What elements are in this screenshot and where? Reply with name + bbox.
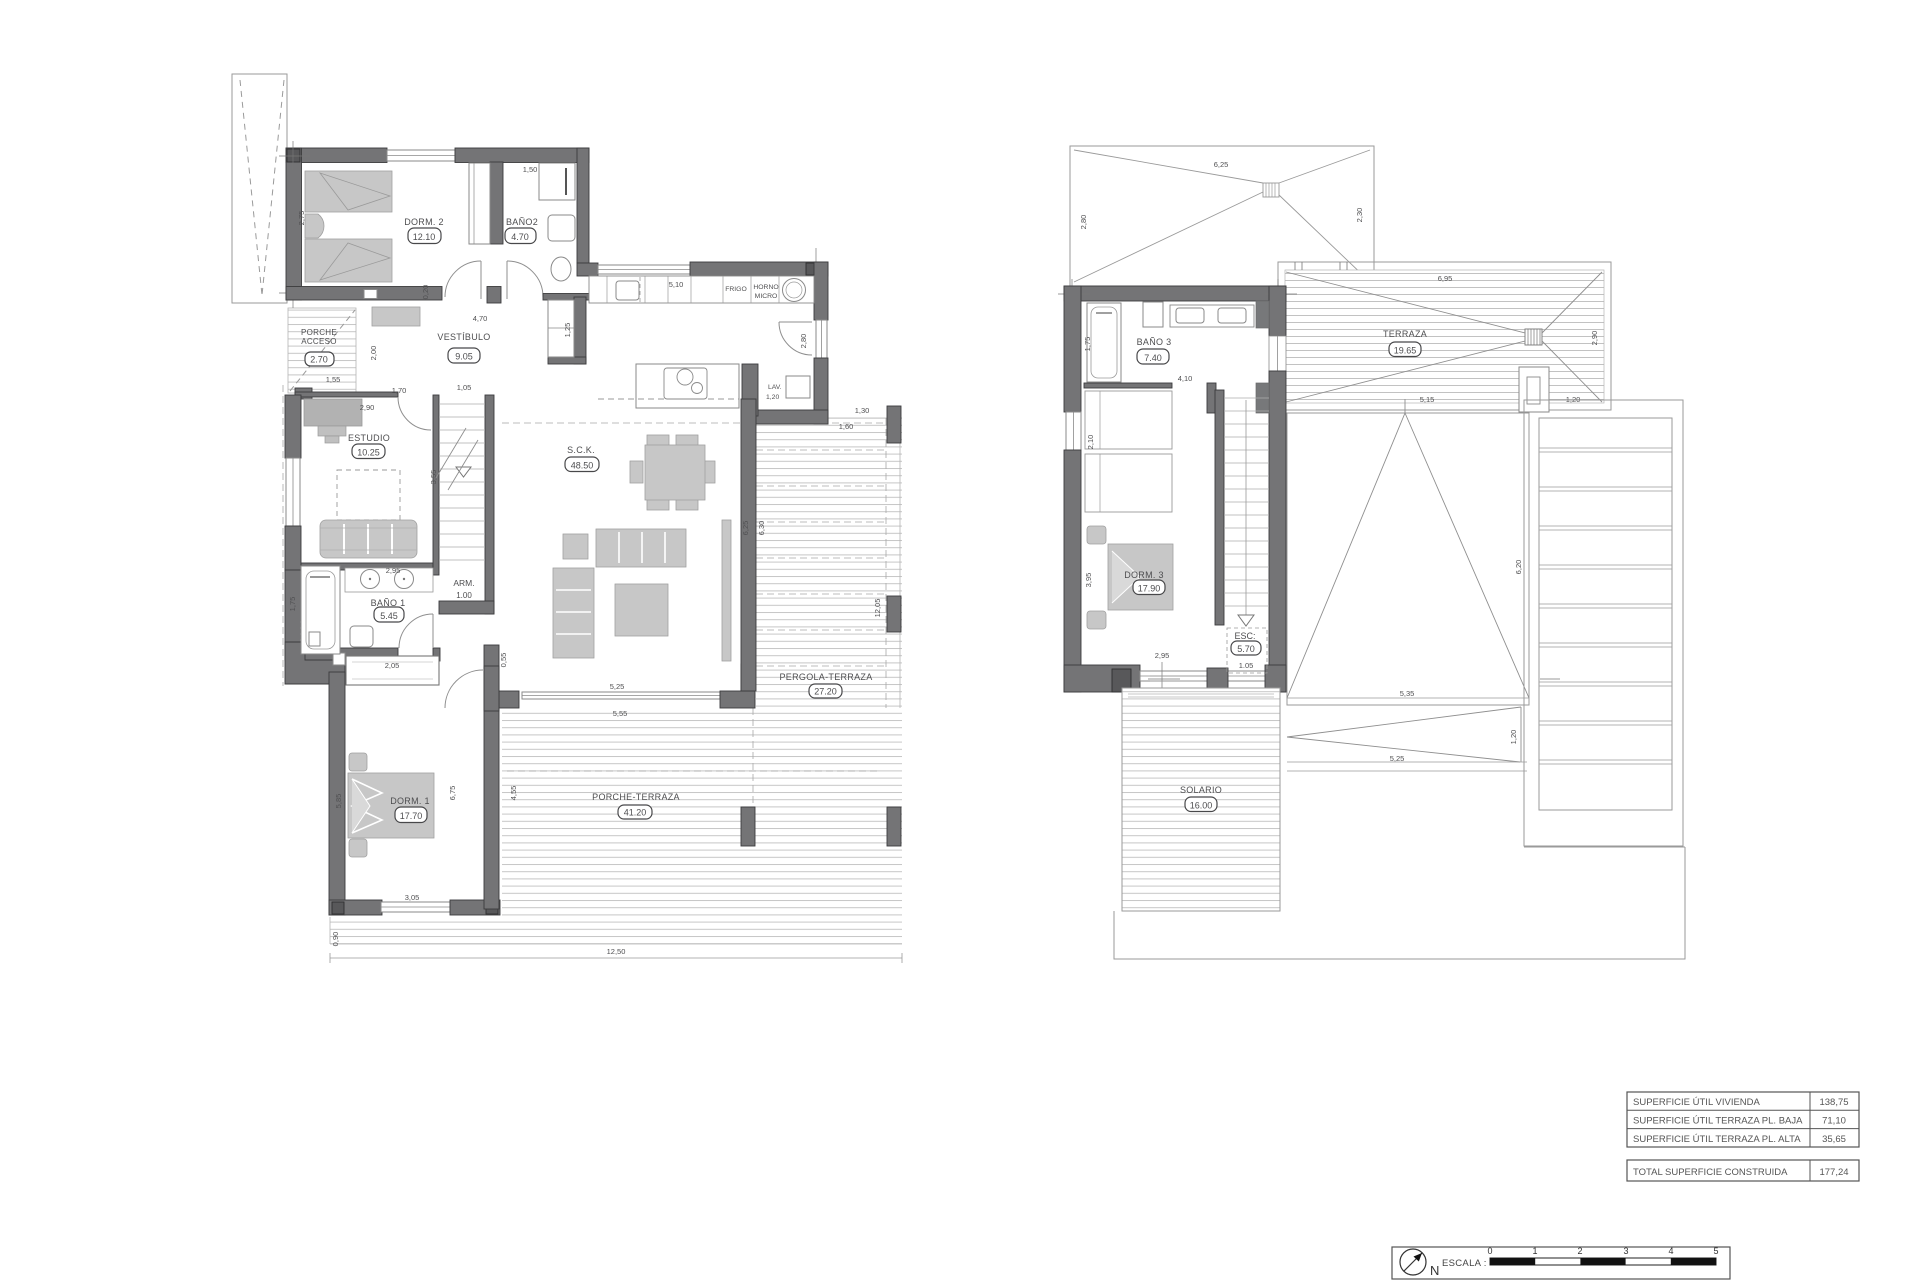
svg-text:1,50: 1,50 xyxy=(523,165,538,174)
svg-text:4,10: 4,10 xyxy=(1178,374,1193,383)
svg-text:4,70: 4,70 xyxy=(473,314,488,323)
svg-text:1,30: 1,30 xyxy=(855,406,870,415)
svg-text:2.70: 2.70 xyxy=(310,355,328,365)
svg-text:17.90: 17.90 xyxy=(1138,584,1161,594)
svg-text:5,85: 5,85 xyxy=(334,794,343,809)
svg-text:1,20: 1,20 xyxy=(766,394,779,401)
svg-text:0,20: 0,20 xyxy=(421,285,430,300)
svg-text:ACCESO: ACCESO xyxy=(301,337,337,346)
svg-text:35,65: 35,65 xyxy=(1822,1134,1846,1145)
svg-text:71,10: 71,10 xyxy=(1822,1116,1846,1127)
svg-text:ESTUDIO: ESTUDIO xyxy=(348,433,390,443)
svg-text:FRIGO: FRIGO xyxy=(725,286,747,293)
svg-text:2,80: 2,80 xyxy=(1079,215,1088,230)
svg-text:TERRAZA: TERRAZA xyxy=(1383,329,1427,339)
svg-text:5.70: 5.70 xyxy=(1237,644,1255,654)
svg-text:12,50: 12,50 xyxy=(607,947,626,956)
svg-text:2,90: 2,90 xyxy=(1590,331,1599,346)
svg-text:2,05: 2,05 xyxy=(385,661,400,670)
svg-text:12.10: 12.10 xyxy=(413,232,436,242)
svg-text:4.70: 4.70 xyxy=(511,232,529,242)
svg-text:3,95: 3,95 xyxy=(1084,573,1093,588)
svg-text:16.00: 16.00 xyxy=(1190,801,1213,811)
svg-text:TOTAL SUPERFICIE CONSTRUIDA: TOTAL SUPERFICIE CONSTRUIDA xyxy=(1633,1167,1788,1178)
svg-text:PORCHE-TERRAZA: PORCHE-TERRAZA xyxy=(592,792,680,802)
svg-text:5,25: 5,25 xyxy=(610,682,625,691)
svg-text:SOLARIO: SOLARIO xyxy=(1180,785,1222,795)
svg-text:41.20: 41.20 xyxy=(624,808,647,818)
svg-text:3,55: 3,55 xyxy=(429,470,438,485)
svg-text:ARM.: ARM. xyxy=(453,578,474,588)
svg-text:6,20: 6,20 xyxy=(1514,560,1523,575)
svg-text:2: 2 xyxy=(1577,1246,1582,1256)
svg-text:5.45: 5.45 xyxy=(380,611,398,621)
svg-text:9.05: 9.05 xyxy=(455,352,473,362)
svg-text:DORM. 1: DORM. 1 xyxy=(390,796,430,806)
svg-text:3,05: 3,05 xyxy=(405,893,420,902)
svg-text:3: 3 xyxy=(1623,1246,1628,1256)
svg-text:SUPERFICIE ÚTIL TERRAZA PL. BA: SUPERFICIE ÚTIL TERRAZA PL. BAJA xyxy=(1633,1116,1803,1127)
svg-text:6,30: 6,30 xyxy=(757,521,766,536)
svg-text:1: 1 xyxy=(1532,1246,1537,1256)
svg-text:SUPERFICIE ÚTIL TERRAZA PL. AL: SUPERFICIE ÚTIL TERRAZA PL. ALTA xyxy=(1633,1134,1801,1145)
svg-text:6,25: 6,25 xyxy=(1214,160,1229,169)
svg-text:1,60: 1,60 xyxy=(839,422,854,431)
svg-text:BAÑO 3: BAÑO 3 xyxy=(1137,337,1172,347)
svg-text:2,80: 2,80 xyxy=(799,334,808,349)
svg-text:DORM. 3: DORM. 3 xyxy=(1124,570,1164,580)
svg-text:PERGOLA-TERRAZA: PERGOLA-TERRAZA xyxy=(779,672,872,682)
svg-text:DORM. 2: DORM. 2 xyxy=(404,217,444,227)
svg-text:27.20: 27.20 xyxy=(814,687,837,697)
svg-text:1,75: 1,75 xyxy=(288,597,297,612)
svg-text:48.50: 48.50 xyxy=(571,461,594,471)
svg-text:1,55: 1,55 xyxy=(326,375,341,384)
svg-text:SUPERFICIE ÚTIL VIVIENDA: SUPERFICIE ÚTIL VIVIENDA xyxy=(1633,1097,1761,1108)
svg-text:1,70: 1,70 xyxy=(392,386,407,395)
svg-text:ESC:: ESC: xyxy=(1234,631,1255,641)
svg-text:VESTÍBULO: VESTÍBULO xyxy=(437,332,490,342)
svg-text:6,25: 6,25 xyxy=(741,521,750,536)
svg-text:S.C.K.: S.C.K. xyxy=(567,445,595,455)
svg-text:6,95: 6,95 xyxy=(1438,274,1453,283)
svg-text:2,30: 2,30 xyxy=(1355,208,1364,223)
svg-text:5,35: 5,35 xyxy=(1400,689,1415,698)
svg-text:LAV.: LAV. xyxy=(768,384,782,391)
svg-text:1,05: 1,05 xyxy=(457,383,472,392)
svg-text:2,00: 2,00 xyxy=(369,346,378,361)
svg-text:177,24: 177,24 xyxy=(1819,1167,1848,1178)
svg-text:0,55: 0,55 xyxy=(499,653,508,668)
svg-text:1,25: 1,25 xyxy=(563,323,572,338)
svg-text:1.05: 1.05 xyxy=(1239,661,1254,670)
svg-text:5: 5 xyxy=(1713,1246,1718,1256)
svg-text:0,90: 0,90 xyxy=(331,932,340,947)
svg-text:1.00: 1.00 xyxy=(456,591,472,600)
svg-text:4: 4 xyxy=(1668,1246,1673,1256)
svg-text:12,05: 12,05 xyxy=(873,599,882,618)
svg-text:138,75: 138,75 xyxy=(1819,1097,1848,1108)
svg-text:N: N xyxy=(1430,1263,1439,1278)
svg-text:10.25: 10.25 xyxy=(357,448,380,458)
svg-text:PORCHE: PORCHE xyxy=(301,328,337,337)
svg-text:MICRO: MICRO xyxy=(755,293,778,300)
svg-text:1,75: 1,75 xyxy=(1083,337,1092,352)
svg-text:4,55: 4,55 xyxy=(509,786,518,801)
svg-text:19.65: 19.65 xyxy=(1394,346,1417,356)
svg-text:ESCALA :: ESCALA : xyxy=(1442,1258,1487,1269)
svg-text:6,75: 6,75 xyxy=(448,786,457,801)
svg-text:BAÑO2: BAÑO2 xyxy=(506,217,538,227)
svg-text:2,10: 2,10 xyxy=(1086,435,1095,450)
svg-text:1,20: 1,20 xyxy=(1509,730,1518,745)
svg-text:2,75: 2,75 xyxy=(297,211,306,226)
svg-text:5,10: 5,10 xyxy=(669,280,684,289)
svg-text:5,55: 5,55 xyxy=(613,709,628,718)
svg-text:5,15: 5,15 xyxy=(1420,395,1435,404)
svg-text:17.70: 17.70 xyxy=(400,811,423,821)
svg-text:HORNO: HORNO xyxy=(753,284,778,291)
svg-text:0: 0 xyxy=(1487,1246,1492,1256)
svg-text:7.40: 7.40 xyxy=(1144,353,1162,363)
svg-text:2,90: 2,90 xyxy=(360,403,375,412)
svg-text:2,95: 2,95 xyxy=(386,566,401,575)
svg-text:2,95: 2,95 xyxy=(1155,651,1170,660)
